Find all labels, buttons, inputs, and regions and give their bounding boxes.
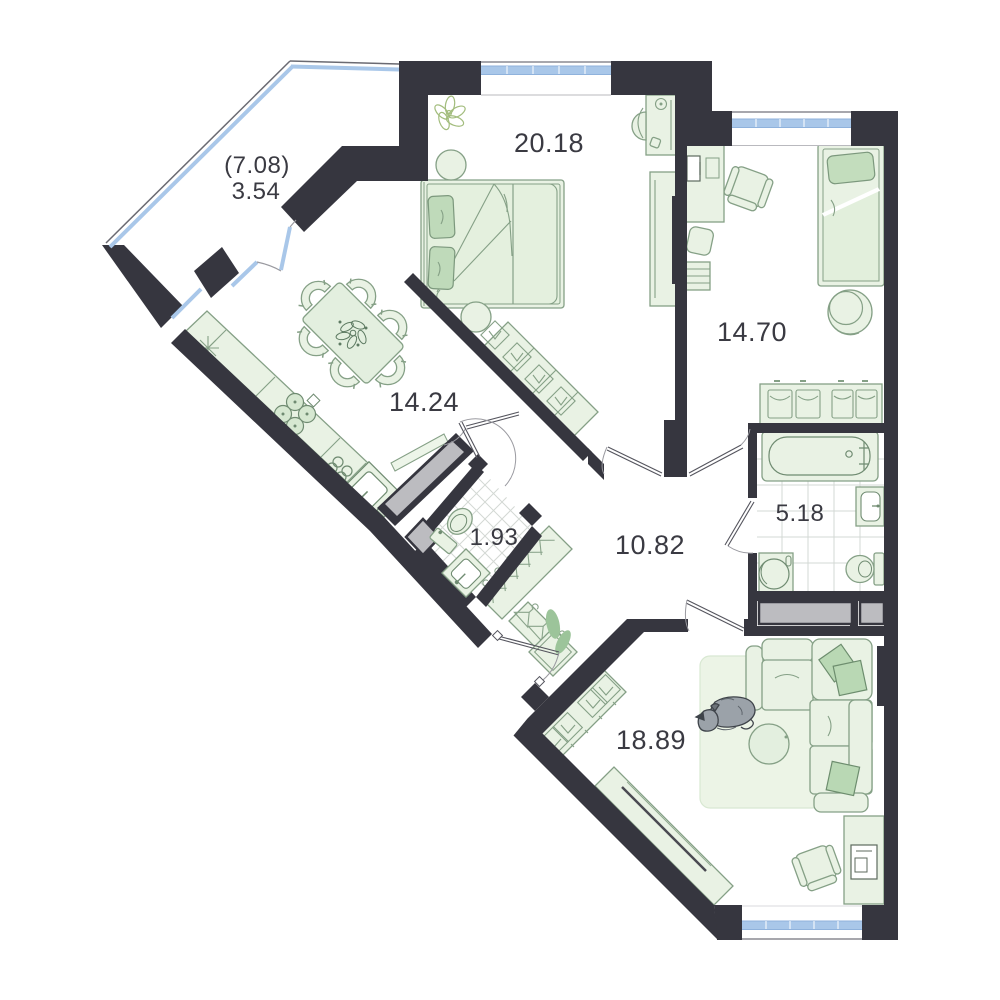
svg-text:18.89: 18.89	[616, 725, 686, 755]
svg-text:10.82: 10.82	[615, 530, 685, 560]
svg-text:14.70: 14.70	[717, 317, 787, 347]
svg-text:20.18: 20.18	[514, 128, 584, 158]
svg-text:3.54: 3.54	[232, 178, 281, 205]
svg-text:14.24: 14.24	[389, 387, 459, 417]
svg-text:(7.08): (7.08)	[224, 152, 290, 179]
svg-text:1.93: 1.93	[470, 524, 519, 551]
svg-text:5.18: 5.18	[776, 500, 825, 527]
